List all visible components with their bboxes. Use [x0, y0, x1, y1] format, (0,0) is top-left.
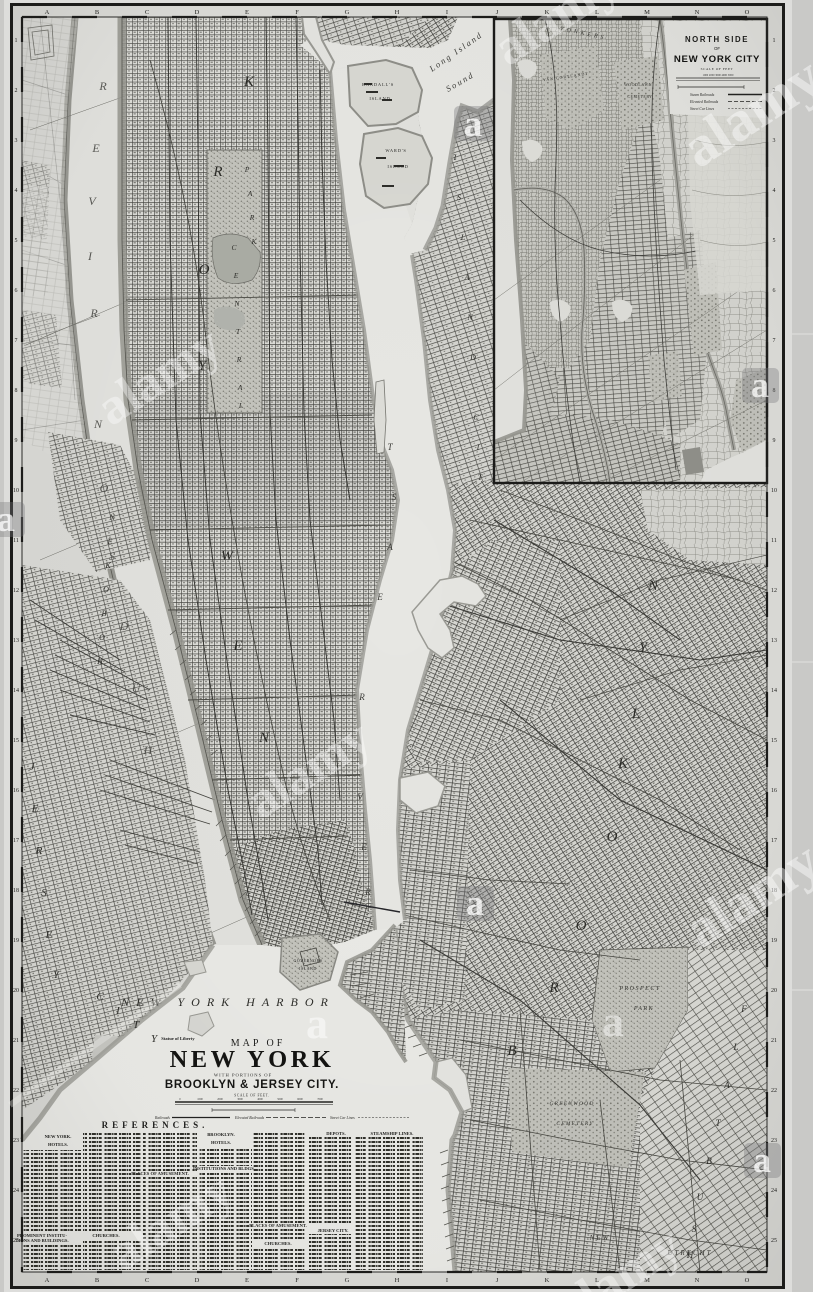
svg-text:6: 6	[15, 288, 18, 294]
svg-text:PLACES OF AMUSEMENT.: PLACES OF AMUSEMENT.	[249, 1223, 307, 1228]
svg-text:C: C	[145, 1277, 149, 1284]
svg-text:4: 4	[15, 188, 18, 194]
svg-text:D: D	[195, 9, 200, 16]
svg-text:Statue of Liberty: Statue of Liberty	[161, 1036, 195, 1041]
svg-text:S: S	[692, 1224, 697, 1234]
svg-text:3000: 3000	[237, 1098, 243, 1101]
svg-text:R: R	[35, 845, 43, 857]
svg-text:11: 11	[771, 538, 777, 544]
svg-text:B: B	[102, 609, 107, 618]
svg-text:N: N	[93, 417, 103, 431]
svg-text:a: a	[753, 1140, 771, 1180]
svg-text:G: G	[345, 9, 350, 16]
svg-text:C: C	[96, 991, 104, 1003]
svg-text:I: I	[476, 443, 480, 452]
svg-text:N: N	[695, 1277, 700, 1284]
svg-text:A: A	[45, 9, 50, 16]
svg-text:I: I	[446, 9, 448, 16]
svg-text:I: I	[446, 1277, 448, 1284]
svg-text:A: A	[723, 1080, 730, 1090]
svg-text:N: N	[258, 730, 270, 746]
svg-text:R: R	[548, 980, 558, 996]
svg-text:15: 15	[13, 738, 19, 744]
svg-text:A: A	[237, 383, 243, 392]
svg-text:D: D	[195, 1277, 200, 1284]
svg-text:NEW YORK.: NEW YORK.	[45, 1134, 72, 1139]
svg-text:E: E	[245, 1277, 249, 1284]
svg-text:a: a	[0, 499, 15, 539]
svg-text:O: O	[576, 918, 587, 934]
svg-text:REFERENCES.: REFERENCES.	[102, 1120, 209, 1130]
svg-text:L: L	[460, 233, 466, 242]
svg-text:a: a	[306, 999, 328, 1048]
svg-text:8: 8	[15, 388, 18, 394]
svg-text:12: 12	[13, 588, 19, 594]
svg-text:B: B	[507, 1043, 516, 1059]
svg-text:6000: 6000	[297, 1098, 303, 1101]
svg-text:E: E	[45, 929, 53, 941]
svg-text:Street Car Lines: Street Car Lines	[330, 1116, 355, 1120]
svg-text:E: E	[233, 271, 239, 280]
svg-text:P: P	[244, 165, 250, 174]
svg-text:R: R	[364, 887, 371, 897]
svg-text:N: N	[695, 9, 700, 16]
svg-text:CHURCHES.: CHURCHES.	[264, 1241, 291, 1246]
svg-text:6: 6	[773, 288, 776, 294]
svg-text:DEPOTS.: DEPOTS.	[326, 1131, 346, 1136]
svg-text:19: 19	[13, 938, 19, 944]
svg-text:K: K	[250, 237, 257, 246]
svg-text:TIONS AND BUILDINGS.: TIONS AND BUILDINGS.	[15, 1238, 68, 1243]
svg-text:S: S	[41, 887, 47, 899]
svg-text:BROOKLYN.: BROOKLYN.	[207, 1132, 235, 1137]
svg-text:7: 7	[15, 338, 18, 344]
svg-text:R: R	[98, 79, 107, 93]
svg-text:K: K	[104, 561, 111, 570]
svg-text:F: F	[295, 1277, 299, 1284]
svg-text:RANDALL'S: RANDALL'S	[362, 82, 394, 87]
svg-text:23: 23	[13, 1138, 19, 1144]
svg-text:CEMETERY: CEMETERY	[556, 1121, 593, 1127]
svg-text:7000: 7000	[317, 1098, 323, 1101]
svg-text:21: 21	[13, 1038, 19, 1044]
svg-text:1: 1	[773, 38, 776, 44]
svg-text:HOTELS.: HOTELS.	[211, 1140, 231, 1145]
svg-text:NEW: NEW	[589, 1234, 611, 1242]
svg-text:25: 25	[771, 1238, 777, 1244]
svg-text:4: 4	[773, 188, 776, 194]
svg-text:GOVERNORS: GOVERNORS	[294, 958, 323, 963]
svg-text:a: a	[464, 104, 483, 145]
svg-text:Elevated Railroads: Elevated Railroads	[234, 1116, 265, 1120]
svg-text:K: K	[545, 1277, 550, 1284]
svg-text:BROOKLYN & JERSEY CITY.: BROOKLYN & JERSEY CITY.	[165, 1079, 339, 1091]
svg-text:2: 2	[15, 88, 18, 94]
svg-text:2000: 2000	[217, 1098, 223, 1101]
svg-text:A: A	[45, 1277, 50, 1284]
svg-text:E: E	[107, 537, 113, 546]
svg-text:5000: 5000	[277, 1098, 283, 1101]
svg-text:20: 20	[13, 988, 19, 994]
svg-text:A: A	[464, 273, 470, 282]
svg-text:O: O	[745, 9, 750, 16]
svg-text:D: D	[119, 619, 129, 633]
svg-text:WARD'S: WARD'S	[385, 148, 406, 153]
svg-text:N: N	[466, 313, 473, 322]
svg-text:E: E	[376, 592, 383, 602]
svg-text:4000: 4000	[257, 1098, 263, 1101]
svg-text:a: a	[466, 883, 484, 923]
svg-text:13: 13	[13, 638, 19, 644]
svg-text:B: B	[95, 9, 100, 16]
svg-text:C: C	[473, 413, 479, 422]
svg-text:R: R	[236, 355, 242, 364]
svg-text:O: O	[745, 1277, 750, 1284]
svg-text:WITH PORTIONS OF: WITH PORTIONS OF	[214, 1073, 272, 1078]
svg-text:D: D	[469, 353, 476, 362]
svg-text:G: G	[345, 1277, 350, 1284]
svg-text:N: N	[233, 299, 240, 308]
svg-text:H: H	[395, 9, 400, 16]
svg-text:10: 10	[13, 488, 19, 494]
svg-text:STEAMSHIP LINES.: STEAMSHIP LINES.	[371, 1131, 414, 1136]
svg-text:GREENWOOD: GREENWOOD	[549, 1101, 594, 1107]
svg-text:14: 14	[771, 688, 777, 694]
svg-text:E: E	[91, 141, 100, 155]
svg-text:N: N	[647, 578, 659, 594]
svg-text:N: N	[108, 513, 115, 522]
svg-text:U: U	[132, 681, 142, 695]
svg-text:JERSEY CITY.: JERSEY CITY.	[318, 1228, 349, 1233]
svg-text:O: O	[99, 633, 105, 642]
svg-text:U: U	[697, 1192, 704, 1202]
svg-text:HOTELS.: HOTELS.	[48, 1142, 68, 1147]
svg-text:S: S	[392, 492, 397, 502]
svg-text:5: 5	[773, 238, 776, 244]
svg-text:3: 3	[15, 138, 18, 144]
svg-text:7: 7	[773, 338, 776, 344]
svg-text:a: a	[602, 997, 624, 1046]
svg-text:20: 20	[771, 988, 777, 994]
svg-text:C: C	[145, 9, 149, 16]
svg-text:A: A	[247, 189, 253, 198]
svg-text:21: 21	[771, 1038, 777, 1044]
svg-text:E: E	[232, 638, 242, 654]
svg-text:S: S	[457, 193, 461, 202]
svg-text:NEW YORK: NEW YORK	[170, 1046, 335, 1073]
svg-text:W: W	[221, 548, 235, 564]
svg-text:K: K	[243, 74, 255, 90]
svg-text:ISLAND: ISLAND	[299, 966, 317, 971]
svg-text:O: O	[607, 829, 618, 845]
svg-text:PARK: PARK	[633, 1006, 654, 1012]
svg-text:R: R	[212, 164, 222, 180]
svg-text:H: H	[395, 1277, 400, 1284]
svg-text:14: 14	[13, 688, 19, 694]
svg-text:I: I	[453, 153, 457, 162]
svg-text:H: H	[143, 743, 154, 757]
svg-text:F: F	[740, 1004, 747, 1014]
svg-text:K: K	[617, 756, 629, 772]
svg-text:O: O	[199, 262, 210, 278]
svg-text:17: 17	[13, 838, 19, 844]
svg-text:R: R	[358, 692, 365, 702]
svg-text:16: 16	[771, 788, 777, 794]
svg-text:PROSPECT: PROSPECT	[618, 986, 660, 992]
svg-text:1000: 1000	[197, 1098, 203, 1101]
svg-text:SCALE OF FEET.: SCALE OF FEET.	[234, 1094, 269, 1098]
svg-text:5: 5	[15, 238, 18, 244]
svg-text:9: 9	[773, 438, 776, 444]
svg-text:E: E	[360, 842, 367, 852]
svg-text:24: 24	[771, 1188, 777, 1194]
svg-text:E: E	[245, 9, 249, 16]
svg-text:10: 10	[771, 488, 777, 494]
svg-text:E: E	[31, 803, 39, 815]
svg-text:B: B	[706, 1156, 712, 1166]
svg-text:L: L	[238, 401, 243, 410]
svg-text:22: 22	[13, 1088, 19, 1094]
svg-text:L: L	[732, 1042, 738, 1052]
svg-text:19: 19	[771, 938, 777, 944]
svg-text:24: 24	[13, 1188, 19, 1194]
svg-text:R: R	[89, 306, 98, 320]
svg-text:B: B	[95, 1277, 100, 1284]
svg-text:O: O	[103, 585, 109, 594]
svg-text:F: F	[295, 9, 299, 16]
svg-text:L: L	[631, 706, 640, 722]
svg-text:A: A	[386, 542, 393, 552]
svg-text:a: a	[751, 365, 769, 405]
svg-text:13: 13	[771, 638, 777, 644]
svg-text:ISLAND: ISLAND	[387, 164, 408, 169]
svg-text:18: 18	[13, 888, 19, 894]
svg-text:15: 15	[771, 738, 777, 744]
svg-text:R: R	[249, 213, 255, 222]
svg-text:M: M	[644, 9, 650, 16]
svg-text:ISLAND: ISLAND	[369, 96, 390, 101]
svg-text:1: 1	[15, 38, 18, 44]
svg-text:9: 9	[15, 438, 18, 444]
svg-text:16: 16	[13, 788, 19, 794]
svg-text:12: 12	[771, 588, 777, 594]
svg-text:22: 22	[771, 1088, 777, 1094]
svg-text:O: O	[100, 481, 109, 495]
svg-text:T: T	[478, 473, 483, 482]
svg-text:3: 3	[773, 138, 776, 144]
